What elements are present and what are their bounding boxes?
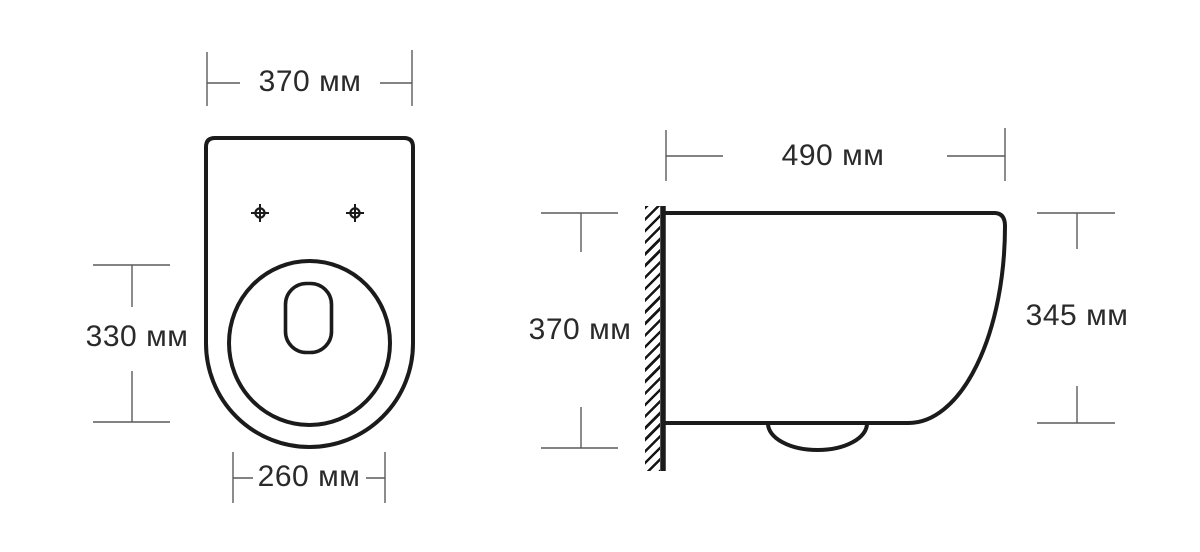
side-view bbox=[663, 206, 1005, 471]
side-front-height-label: 345 мм bbox=[1024, 301, 1131, 331]
mounting-hole-icon-right bbox=[346, 204, 364, 222]
plan-bowl-width-label: 260 мм bbox=[256, 462, 363, 492]
dimension-lines bbox=[93, 50, 1115, 503]
trap-outlet-arc bbox=[768, 424, 867, 451]
drawing-linework bbox=[0, 0, 1200, 552]
drain-opening bbox=[286, 284, 332, 353]
toilet-body-outline bbox=[206, 138, 413, 447]
technical-drawing-canvas: 370 мм 330 мм 260 мм 490 мм 370 мм 345 м… bbox=[0, 0, 1200, 552]
side-wall-height-label: 370 мм bbox=[527, 315, 634, 345]
side-depth-label: 490 мм bbox=[780, 141, 887, 171]
plan-view bbox=[206, 138, 413, 447]
bowl-rim-circle bbox=[229, 261, 390, 425]
plan-overall-width-label: 370 мм bbox=[257, 67, 364, 97]
mounting-hole-icon-left bbox=[251, 204, 269, 222]
toilet-side-profile bbox=[665, 213, 1005, 423]
plan-bowl-length-label: 330 мм bbox=[84, 322, 191, 352]
